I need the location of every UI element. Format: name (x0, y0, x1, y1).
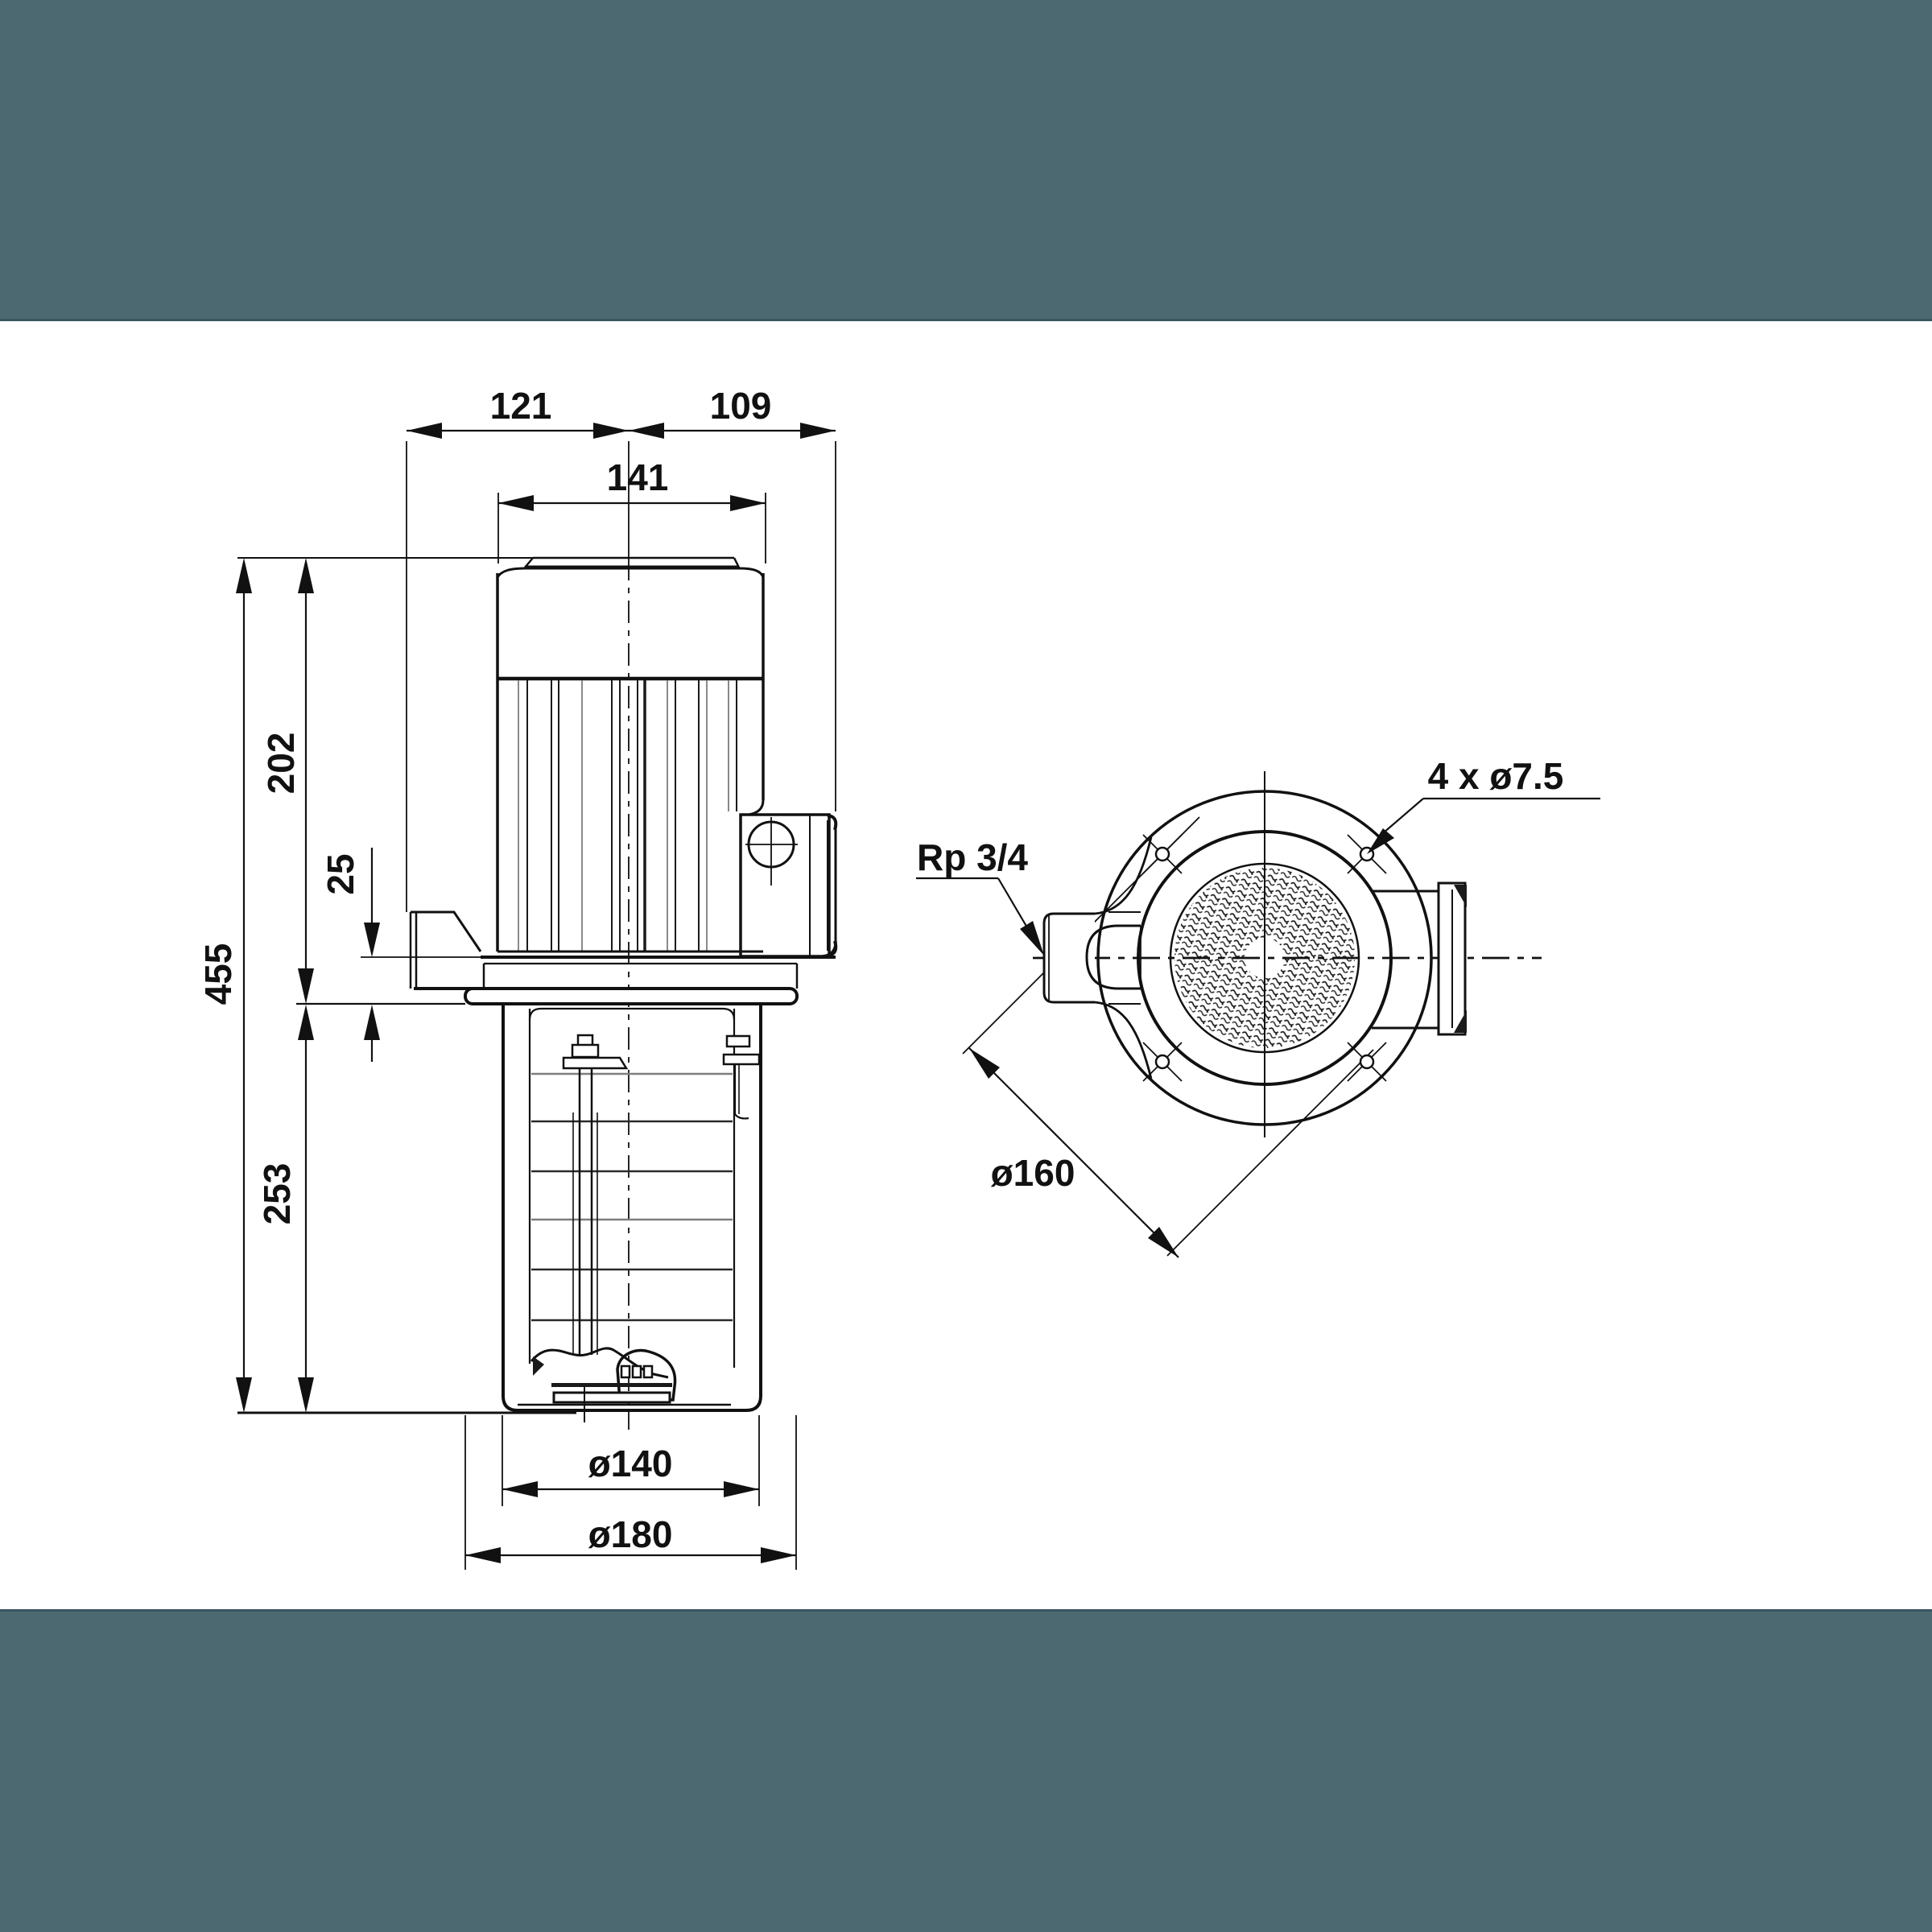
dim-109: 109 (710, 385, 772, 427)
technical-drawing: 121 109 141 455 202 25 (0, 321, 1932, 1609)
bolt-hole (1348, 1042, 1386, 1081)
wing-top (1095, 837, 1151, 914)
letterbox-band-top (0, 0, 1932, 321)
dim-121: 121 (490, 385, 552, 427)
drawing-sheet: 121 109 141 455 202 25 (0, 321, 1932, 1609)
pump-sleeve (503, 1004, 761, 1410)
label-bolt-holes: 4 x ø7.5 (1367, 755, 1600, 854)
stage-lines (531, 1074, 733, 1320)
dim-dia160: ø160 (991, 1152, 1075, 1194)
dim-dia140: ø140 (588, 1443, 673, 1484)
side-dimensions: 121 109 141 455 202 25 (197, 385, 836, 1570)
screenshot-canvas: 121 109 141 455 202 25 (0, 0, 1932, 1932)
wing-bottom (1095, 1002, 1151, 1079)
terminal-box (741, 815, 836, 956)
dim-455: 455 (197, 943, 239, 1005)
motor-fins (518, 680, 737, 952)
bolt-hole (1143, 1042, 1182, 1081)
motor-body (497, 573, 763, 952)
dim-dia180: ø180 (588, 1513, 673, 1555)
tie-bolts (563, 1035, 759, 1355)
dim-253: 253 (256, 1163, 298, 1225)
bolt-hole (1143, 835, 1182, 873)
dim-rp34: Rp 3/4 (917, 836, 1028, 878)
dim-202: 202 (260, 733, 302, 795)
motor-cap (497, 558, 763, 577)
inlet-wedge (533, 1356, 544, 1376)
top-view: 4 x ø7.5 Rp 3/4 ø160 (916, 755, 1600, 1257)
label-suction-port: Rp 3/4 (916, 836, 1044, 956)
dim-25: 25 (320, 853, 361, 894)
dim-4x7.5: 4 x ø7.5 (1428, 755, 1564, 797)
side-view: 121 109 141 455 202 25 (197, 385, 836, 1570)
dim-141: 141 (607, 456, 669, 498)
letterbox-band-bottom (0, 1609, 1932, 1932)
clamp-bracket (411, 912, 481, 952)
mounting-plate (414, 989, 797, 1004)
